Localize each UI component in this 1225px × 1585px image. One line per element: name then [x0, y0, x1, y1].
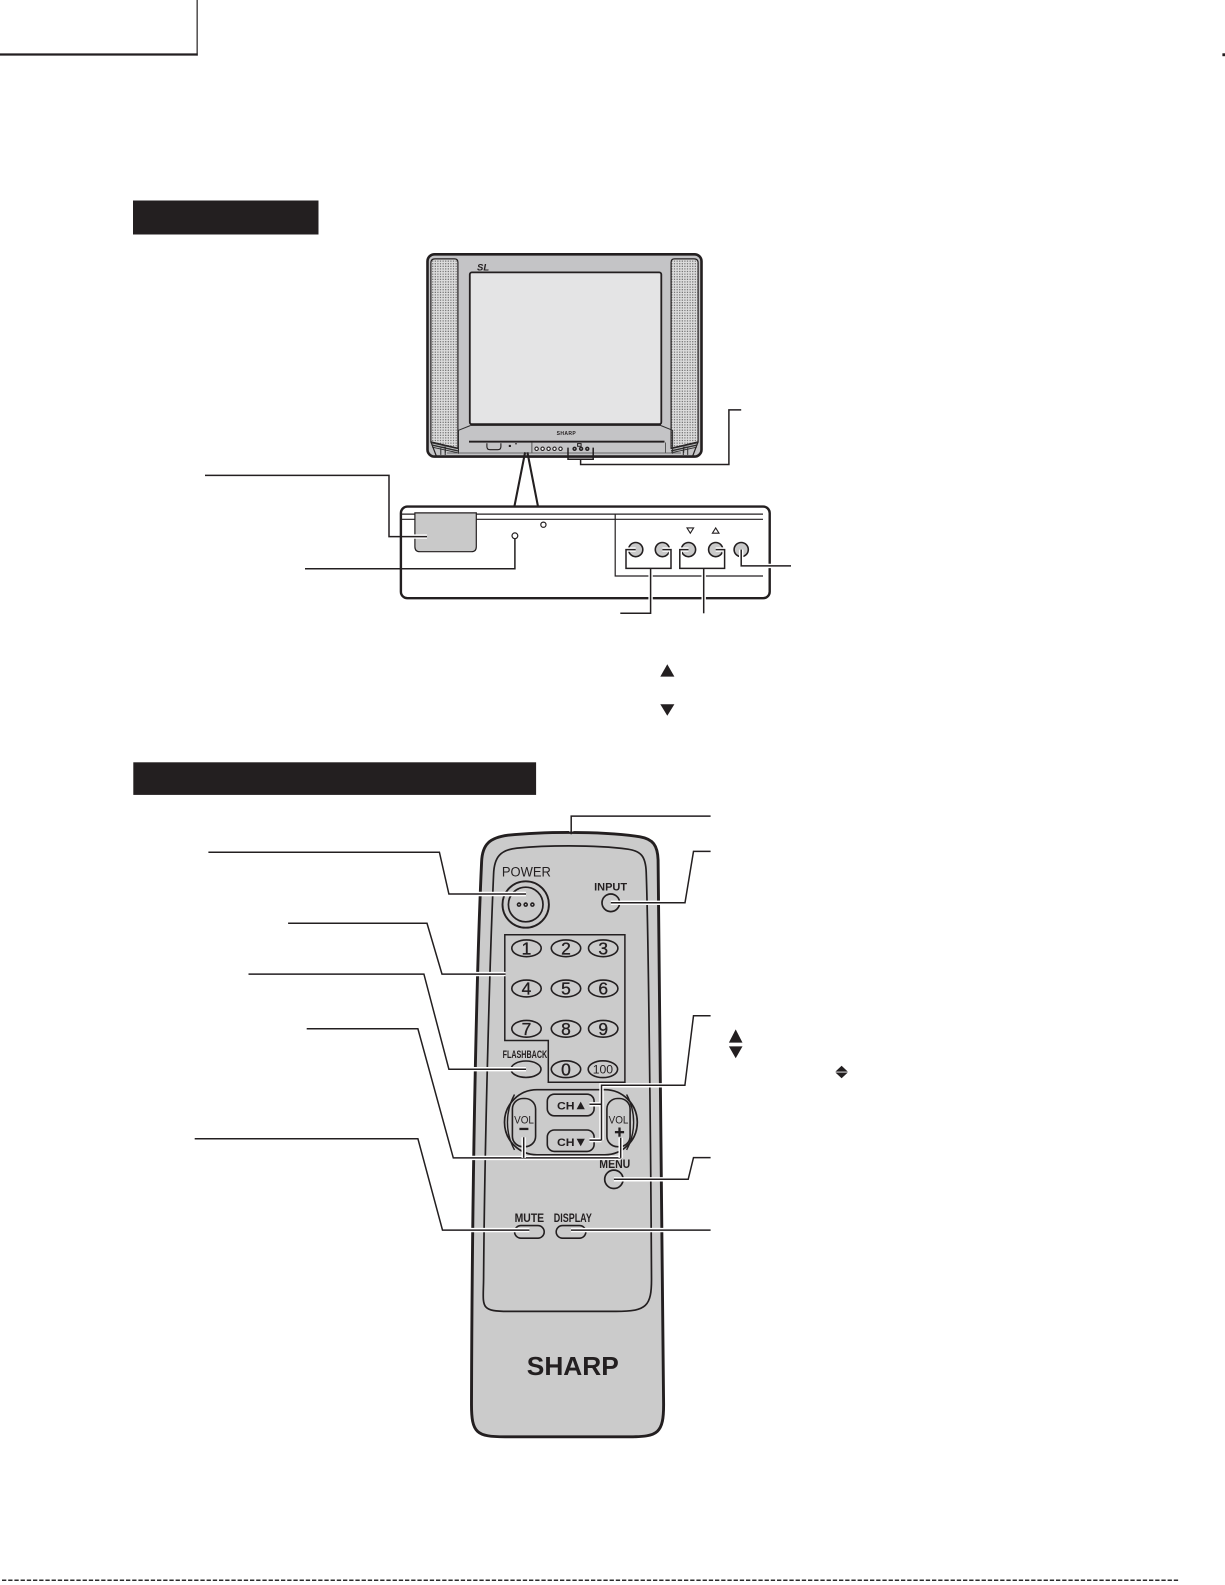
svg-text:CH: CH: [557, 1137, 575, 1149]
svg-text:9: 9: [598, 1019, 608, 1039]
svg-text:3: 3: [598, 939, 608, 959]
svg-text:INPUT: INPUT: [594, 882, 627, 894]
svg-text:1: 1: [522, 939, 532, 959]
svg-text:5: 5: [561, 979, 571, 999]
svg-text:MUTE: MUTE: [515, 1212, 545, 1225]
svg-text:VOL: VOL: [609, 1114, 629, 1126]
svg-text:POWER: POWER: [502, 865, 551, 880]
svg-text:0: 0: [561, 1059, 571, 1079]
svg-text:4: 4: [522, 979, 532, 999]
svg-text:FLASHBACK: FLASHBACK: [503, 1049, 548, 1061]
svg-text:SHARP: SHARP: [557, 431, 577, 437]
svg-text:SL: SL: [477, 263, 489, 274]
svg-text:DISPLAY: DISPLAY: [554, 1212, 592, 1225]
svg-text:8: 8: [561, 1019, 571, 1039]
svg-text:SHARP: SHARP: [527, 1353, 619, 1381]
svg-text:7: 7: [522, 1019, 532, 1039]
svg-text:MENU: MENU: [599, 1159, 630, 1171]
svg-text:CH: CH: [557, 1100, 575, 1112]
svg-text:2: 2: [561, 939, 571, 959]
svg-text:6: 6: [598, 979, 608, 999]
svg-text:VOL: VOL: [514, 1114, 534, 1126]
svg-text:100: 100: [593, 1063, 614, 1077]
